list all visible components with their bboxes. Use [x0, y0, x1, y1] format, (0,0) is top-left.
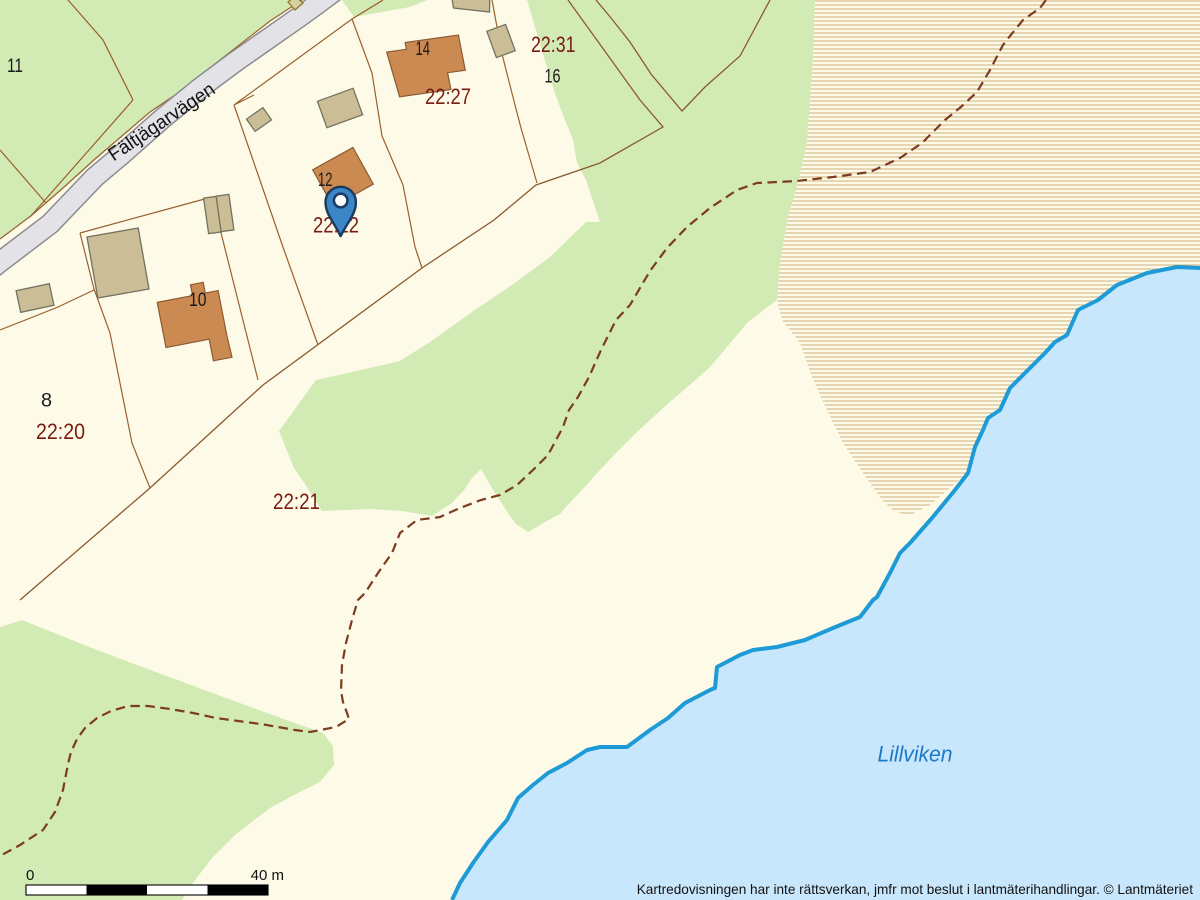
svg-text:8: 8	[41, 391, 52, 412]
svg-text:16: 16	[545, 67, 561, 88]
svg-text:22:20: 22:20	[36, 419, 85, 444]
svg-text:10: 10	[189, 290, 207, 311]
svg-text:22:21: 22:21	[273, 489, 320, 514]
svg-text:14: 14	[416, 39, 431, 60]
svg-text:11: 11	[7, 56, 23, 77]
svg-text:40 m: 40 m	[251, 867, 284, 884]
svg-text:0: 0	[26, 867, 34, 884]
svg-text:22:31: 22:31	[531, 32, 576, 57]
svg-text:12: 12	[318, 170, 333, 191]
svg-text:Lillviken: Lillviken	[878, 742, 953, 767]
svg-text:22:27: 22:27	[425, 84, 471, 109]
svg-text:Kartredovisningen har inte rät: Kartredovisningen har inte rättsverkan, …	[637, 882, 1194, 897]
